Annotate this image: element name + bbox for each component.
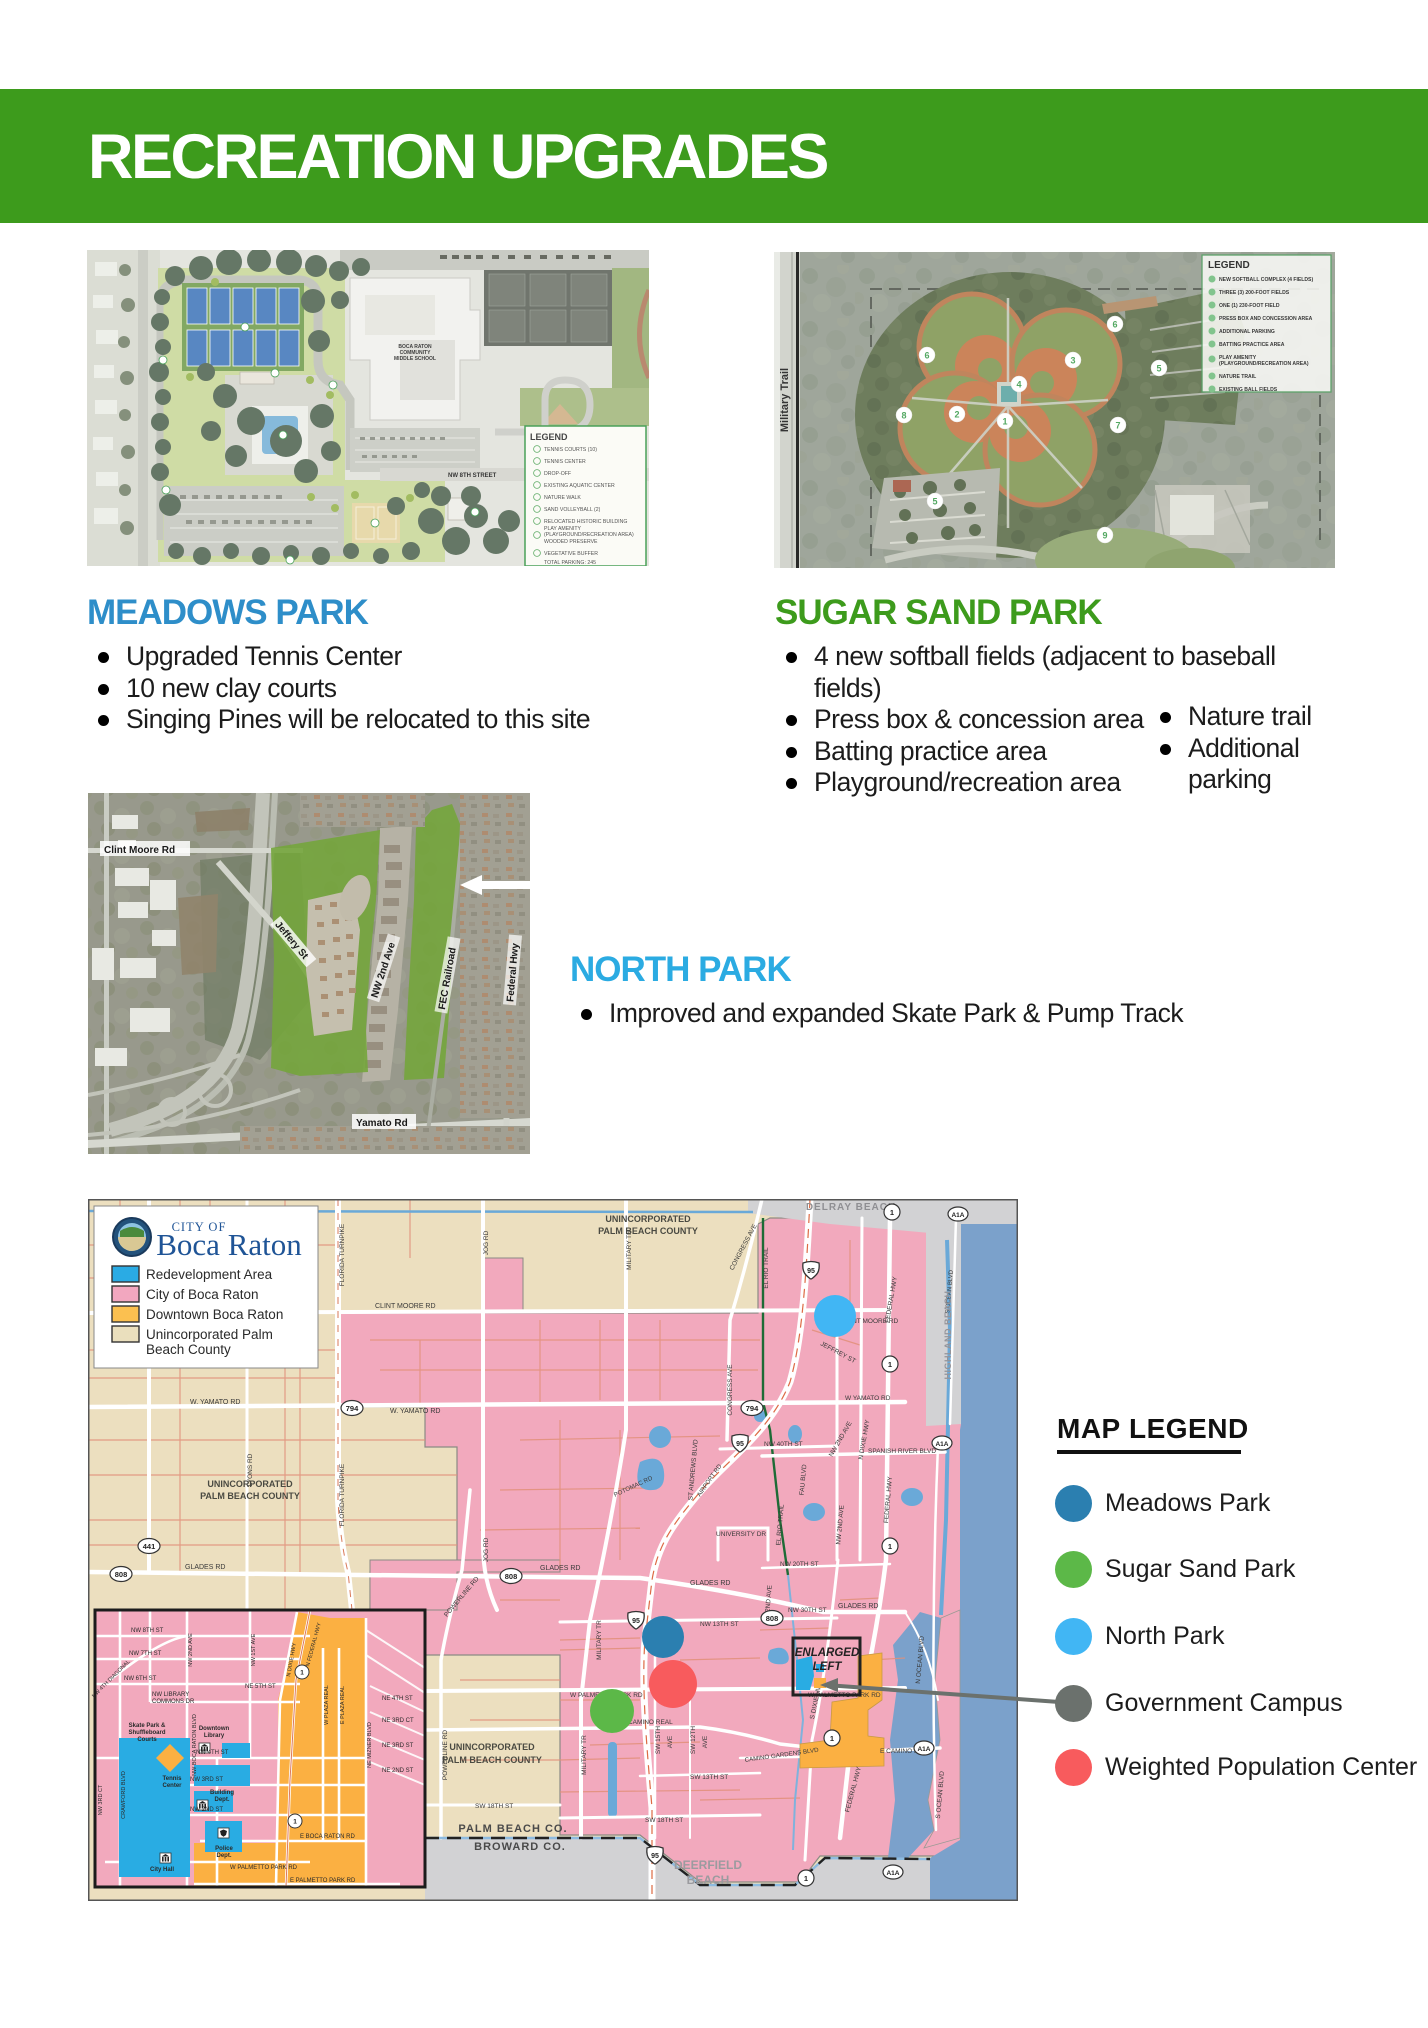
svg-text:NW 3RD CT: NW 3RD CT: [98, 1784, 104, 1815]
svg-text:PALM BEACH COUNTY: PALM BEACH COUNTY: [200, 1491, 300, 1501]
svg-text:NW LIBRARY: NW LIBRARY: [152, 1692, 189, 1698]
svg-text:Courts: Courts: [137, 1737, 157, 1743]
svg-text:Downtown Boca Raton: Downtown Boca Raton: [146, 1307, 283, 1322]
svg-text:City Hall: City Hall: [150, 1867, 174, 1873]
svg-text:SW 12TH: SW 12TH: [690, 1726, 697, 1754]
svg-text:NW 6TH ST: NW 6TH ST: [124, 1676, 157, 1682]
svg-text:BEACH: BEACH: [687, 1873, 730, 1887]
svg-text:FLORIDA TURNPIKE: FLORIDA TURNPIKE: [339, 1223, 346, 1286]
svg-text:UNINCORPORATED: UNINCORPORATED: [605, 1214, 691, 1224]
svg-text:NE 4TH ST: NE 4TH ST: [382, 1696, 413, 1702]
svg-text:W. YAMATO RD: W. YAMATO RD: [190, 1399, 240, 1406]
svg-text:CONGRESS AVE: CONGRESS AVE: [727, 1364, 734, 1416]
svg-text:Clint Moore Rd: Clint Moore Rd: [104, 845, 175, 856]
svg-text:NE 5TH ST: NE 5TH ST: [245, 1684, 276, 1690]
svg-text:1: 1: [888, 1360, 892, 1369]
svg-text:1: 1: [888, 1542, 892, 1551]
svg-text:W PLAZA REAL: W PLAZA REAL: [324, 1685, 330, 1725]
svg-text:A1A: A1A: [886, 1870, 899, 1877]
svg-text:NE MIZNER BLVD: NE MIZNER BLVD: [367, 1722, 373, 1768]
svg-text:EL RIO TRAIL: EL RIO TRAIL: [763, 1247, 770, 1289]
svg-text:UNINCORPORATED: UNINCORPORATED: [449, 1742, 535, 1752]
svg-text:Library: Library: [204, 1733, 225, 1739]
svg-text:Dept.: Dept.: [217, 1853, 232, 1859]
svg-text:DEERFIELD: DEERFIELD: [674, 1858, 742, 1872]
svg-text:Police: Police: [215, 1846, 233, 1852]
svg-text:SW 13TH ST: SW 13TH ST: [690, 1774, 728, 1781]
svg-text:MILITARY TR: MILITARY TR: [581, 1735, 588, 1775]
svg-text:808: 808: [766, 1614, 779, 1623]
svg-text:1: 1: [830, 1734, 834, 1743]
svg-text:E PLAZA REAL: E PLAZA REAL: [340, 1686, 346, 1724]
svg-text:Skate Park &: Skate Park &: [129, 1723, 166, 1729]
svg-text:95: 95: [651, 1853, 659, 1860]
svg-text:A1A: A1A: [917, 1746, 930, 1753]
svg-text:GLADES RD: GLADES RD: [690, 1580, 730, 1587]
svg-text:W. YAMATO RD: W. YAMATO RD: [390, 1408, 440, 1415]
svg-text:BROWARD CO.: BROWARD CO.: [474, 1841, 566, 1853]
svg-text:W YAMATO RD: W YAMATO RD: [845, 1395, 891, 1402]
svg-text:JOG RD: JOG RD: [483, 1537, 490, 1562]
svg-text:Boca Raton: Boca Raton: [156, 1227, 302, 1262]
svg-text:441: 441: [143, 1542, 156, 1551]
svg-text:A1A: A1A: [951, 1212, 964, 1219]
svg-text:GLADES RD: GLADES RD: [838, 1603, 878, 1610]
svg-text:FLORIDA TURNPIKE: FLORIDA TURNPIKE: [339, 1463, 346, 1526]
svg-text:808: 808: [115, 1570, 128, 1579]
svg-text:Shuffleboard: Shuffleboard: [129, 1730, 166, 1736]
svg-text:A1A: A1A: [935, 1441, 948, 1448]
svg-text:MILITARY TR: MILITARY TR: [596, 1620, 603, 1660]
svg-text:794: 794: [346, 1404, 359, 1413]
svg-text:HIGHLAND BEACH: HIGHLAND BEACH: [943, 1291, 953, 1380]
svg-text:NW 40TH ST: NW 40TH ST: [764, 1441, 803, 1448]
svg-text:1: 1: [293, 1819, 297, 1826]
svg-text:UNINCORPORATED: UNINCORPORATED: [207, 1479, 293, 1489]
svg-text:E PALMETTO PARK RD: E PALMETTO PARK RD: [290, 1878, 356, 1884]
svg-text:NW 2ND ST: NW 2ND ST: [190, 1807, 223, 1813]
svg-text:NW 2ND AVE: NW 2ND AVE: [188, 1633, 194, 1667]
svg-text:NW 20TH ST: NW 20TH ST: [780, 1561, 819, 1568]
svg-text:AVE: AVE: [667, 1735, 674, 1748]
svg-text:JOG RD: JOG RD: [483, 1230, 490, 1255]
svg-text:E BOCA RATON RD: E BOCA RATON RD: [300, 1834, 355, 1840]
svg-text:NE 3RD CT: NE 3RD CT: [382, 1718, 414, 1724]
svg-text:NW 30TH ST: NW 30TH ST: [788, 1607, 827, 1614]
svg-text:GLADES RD: GLADES RD: [540, 1565, 580, 1572]
svg-text:COMMONS DR: COMMONS DR: [152, 1699, 195, 1705]
svg-text:NW 8TH ST: NW 8TH ST: [131, 1628, 164, 1634]
svg-text:ENLARGED: ENLARGED: [795, 1647, 860, 1659]
svg-text:NW 3RD ST: NW 3RD ST: [190, 1777, 223, 1783]
svg-text:SPANISH RIVER BLVD: SPANISH RIVER BLVD: [868, 1448, 936, 1455]
svg-text:1: 1: [300, 1670, 304, 1677]
svg-text:PALM BEACH CO.: PALM BEACH CO.: [458, 1823, 567, 1835]
svg-text:808: 808: [505, 1572, 518, 1581]
svg-text:1: 1: [804, 1874, 808, 1883]
svg-text:AVE: AVE: [702, 1735, 709, 1748]
svg-text:NE 2ND ST: NE 2ND ST: [382, 1768, 414, 1774]
svg-text:794: 794: [746, 1404, 759, 1413]
svg-text:1: 1: [890, 1208, 894, 1217]
svg-text:NW 7TH ST: NW 7TH ST: [129, 1651, 162, 1657]
svg-text:Redevelopment Area: Redevelopment Area: [146, 1267, 273, 1282]
svg-text:Downtown: Downtown: [199, 1726, 230, 1732]
svg-text:NW 4TH ST: NW 4TH ST: [196, 1750, 229, 1756]
svg-text:SW 15TH: SW 15TH: [655, 1726, 662, 1754]
svg-text:Tennis: Tennis: [163, 1776, 183, 1782]
svg-text:95: 95: [632, 1618, 640, 1625]
svg-text:NW BOCA RATON BLVD: NW BOCA RATON BLVD: [192, 1714, 198, 1776]
svg-text:Building: Building: [210, 1790, 234, 1796]
svg-text:95: 95: [807, 1268, 815, 1275]
svg-text:Yamato Rd: Yamato Rd: [356, 1118, 408, 1129]
svg-text:City of Boca Raton: City of Boca Raton: [146, 1287, 259, 1302]
svg-text:PALM BEACH COUNTY: PALM BEACH COUNTY: [442, 1755, 542, 1765]
svg-text:Dept.: Dept.: [215, 1797, 230, 1803]
svg-text:W PALMETTO PARK RD: W PALMETTO PARK RD: [230, 1865, 298, 1871]
svg-text:UNIVERSITY DR: UNIVERSITY DR: [716, 1531, 766, 1538]
svg-text:NW 13TH ST: NW 13TH ST: [700, 1621, 739, 1628]
svg-text:Unincorporated Palm: Unincorporated Palm: [146, 1327, 273, 1342]
svg-text:Center: Center: [162, 1783, 182, 1789]
svg-text:95: 95: [736, 1441, 744, 1448]
svg-text:SW 18TH ST: SW 18TH ST: [645, 1817, 683, 1824]
svg-text:SW 18TH ST: SW 18TH ST: [475, 1803, 513, 1810]
svg-text:NE 3RD ST: NE 3RD ST: [382, 1743, 414, 1749]
svg-text:NW 1ST AVE: NW 1ST AVE: [251, 1633, 257, 1666]
svg-text:CRAWFORD BLVD: CRAWFORD BLVD: [121, 1771, 127, 1819]
svg-text:DELRAY BEACH: DELRAY BEACH: [806, 1202, 896, 1213]
svg-text:PALM BEACH COUNTY: PALM BEACH COUNTY: [598, 1226, 698, 1236]
svg-text:CLINT MOORE RD: CLINT MOORE RD: [375, 1303, 436, 1310]
svg-text:Beach County: Beach County: [146, 1342, 231, 1357]
svg-text:GLADES RD: GLADES RD: [185, 1564, 225, 1571]
